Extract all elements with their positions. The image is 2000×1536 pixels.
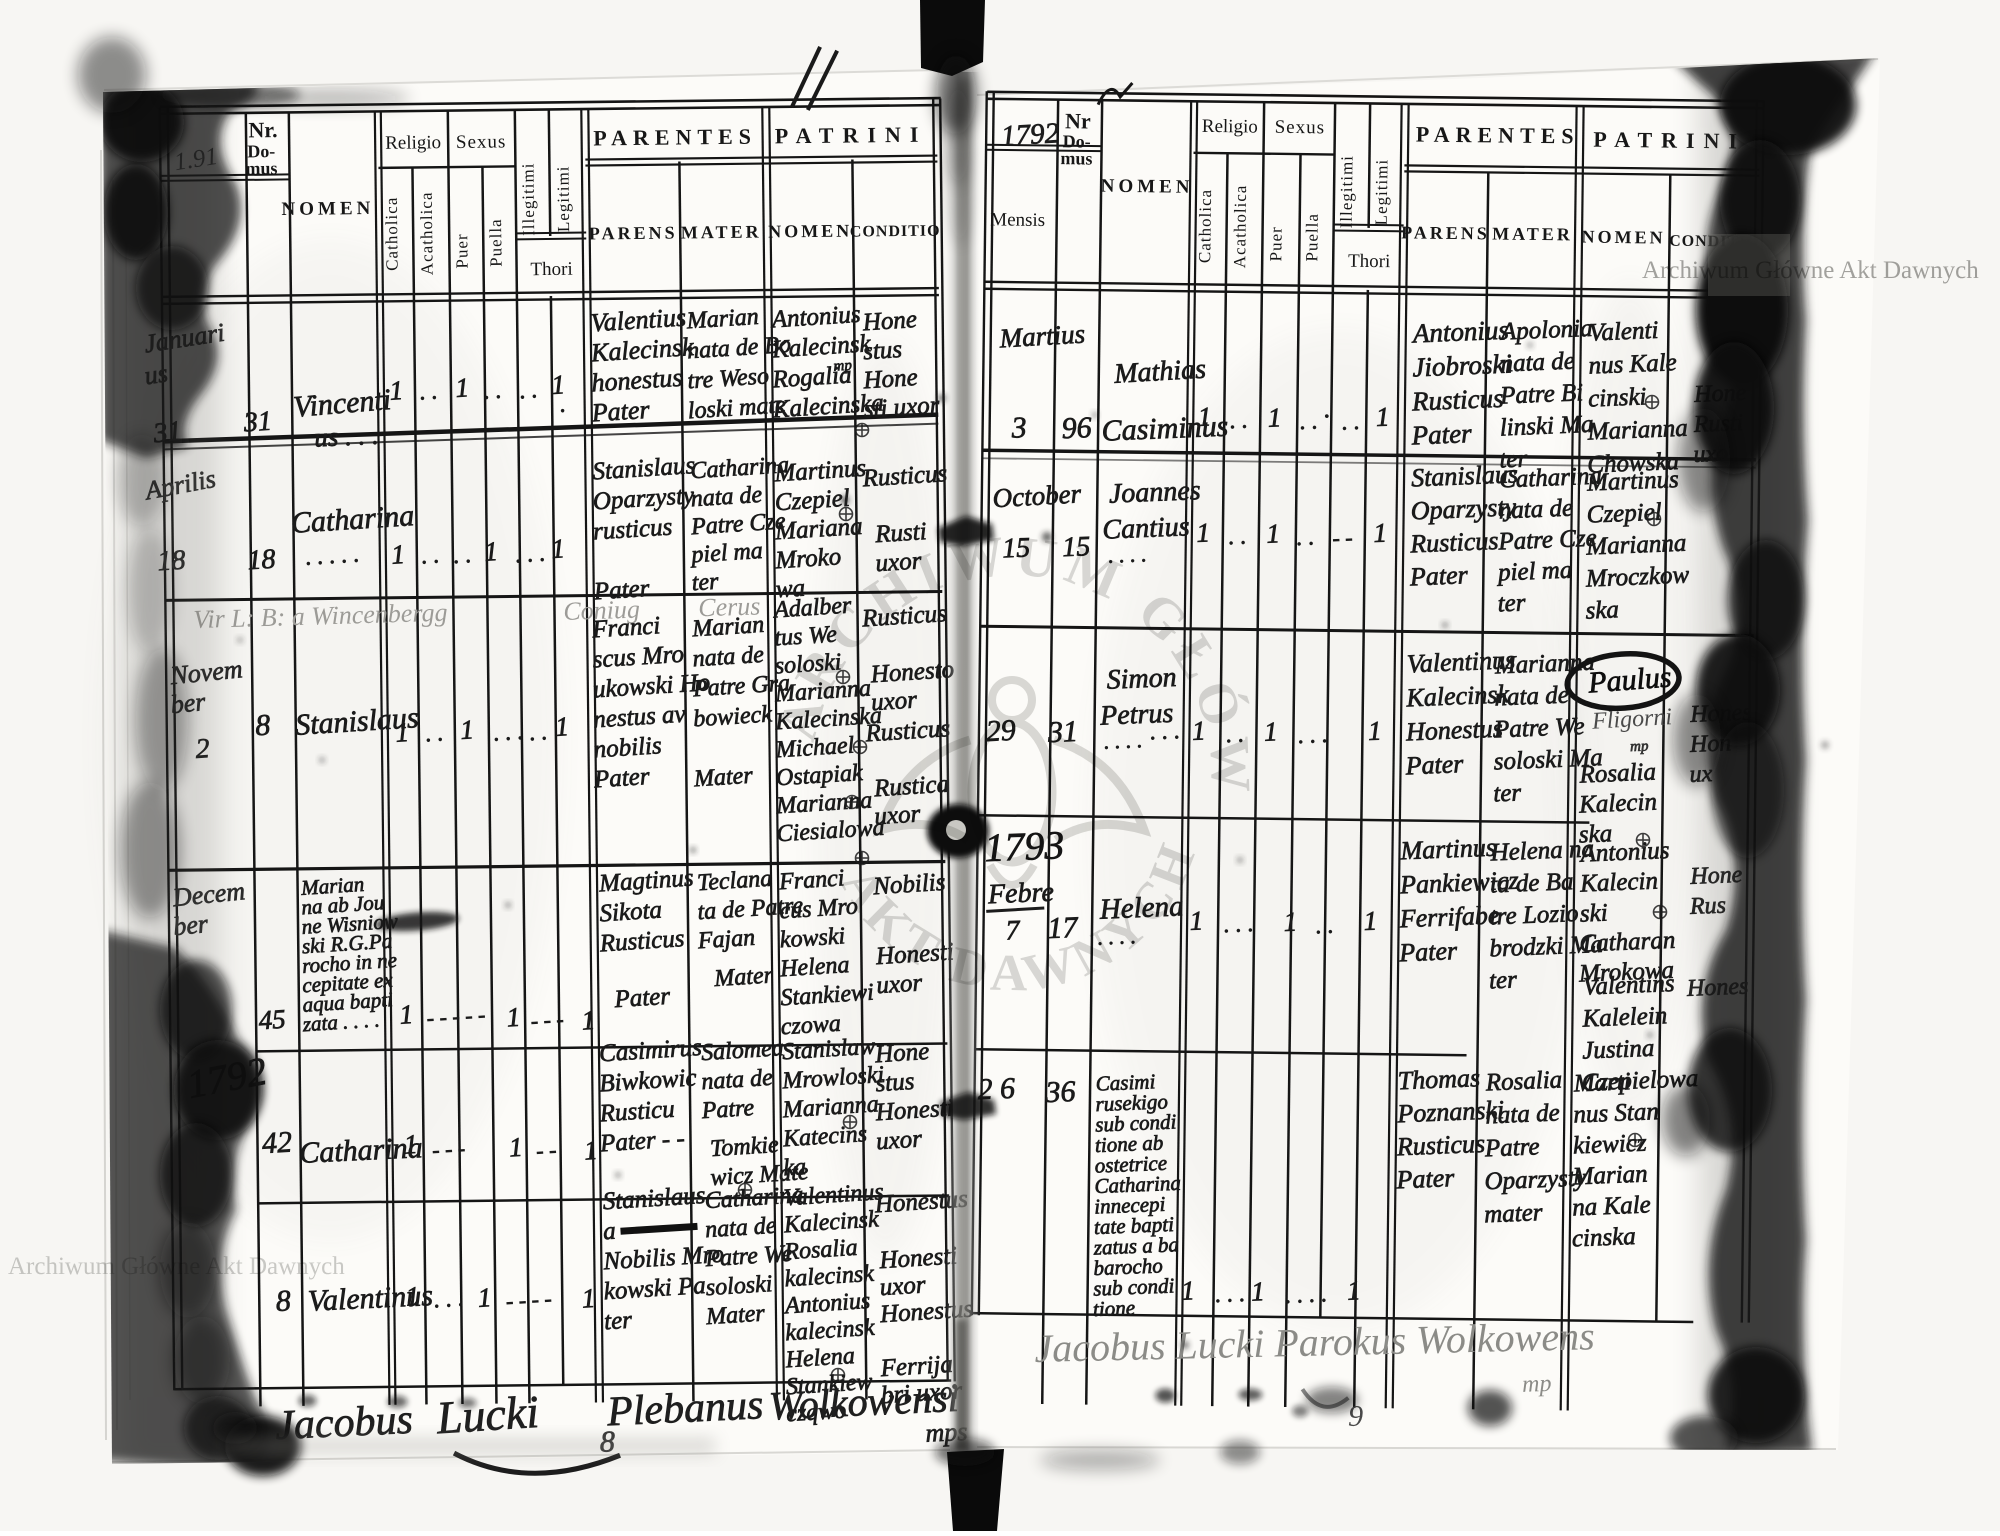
svg-text:- - -: - - - [431, 1135, 466, 1162]
svg-text:Hone: Hone [862, 364, 919, 394]
svg-text:Fajan: Fajan [696, 925, 756, 955]
svg-text:Pater: Pater [1404, 749, 1465, 780]
svg-text:NOMEN: NOMEN [1101, 176, 1194, 198]
svg-text:Tomkie: Tomkie [709, 1132, 779, 1162]
svg-text:- -: - - [535, 1137, 557, 1163]
svg-text:Marianna: Marianna [1585, 530, 1687, 561]
svg-text:36: 36 [1044, 1075, 1076, 1109]
svg-text:1: 1 [1373, 518, 1388, 549]
svg-text:Kalecin: Kalecin [1578, 788, 1658, 818]
svg-text:Pater: Pater [1398, 936, 1459, 967]
svg-text:3: 3 [1010, 411, 1027, 445]
svg-text:us . . .: us . . . [313, 420, 379, 453]
svg-text:7: 7 [1005, 915, 1021, 947]
svg-text:Hone: Hone [873, 1038, 930, 1068]
svg-text:Illegitimi: Illegitimi [518, 162, 538, 235]
svg-text:ska: ska [1585, 596, 1619, 624]
svg-text:Valentius: Valentius [590, 302, 687, 337]
svg-text:. .: . . [1229, 408, 1248, 435]
svg-text:Sikota: Sikota [599, 897, 663, 928]
svg-text:Rusticus: Rusticus [1395, 1129, 1485, 1162]
svg-text:Rosalia: Rosalia [1578, 759, 1656, 789]
svg-text:31: 31 [242, 406, 273, 439]
svg-text:Pater - -: Pater - - [598, 1125, 685, 1157]
svg-text:. .: . . [421, 542, 441, 569]
svg-text:Patre We: Patre We [1493, 713, 1586, 744]
svg-text:nata de: nata de [1494, 682, 1569, 712]
svg-text:.: . [1323, 394, 1331, 423]
svg-text:1: 1 [459, 714, 474, 745]
svg-text:1: 1 [1283, 906, 1298, 937]
svg-text:Rusticus: Rusticus [1410, 383, 1504, 417]
svg-text:Rusticus: Rusticus [861, 460, 948, 492]
svg-text:Kalecin: Kalecin [1579, 867, 1659, 897]
svg-text:Pater: Pater [613, 983, 671, 1014]
svg-text:1: 1 [1367, 715, 1382, 746]
svg-text:na Kale: na Kale [1572, 1191, 1651, 1221]
svg-text:Mater: Mater [712, 962, 774, 992]
svg-text:ter: ter [603, 1307, 633, 1336]
svg-text:1: 1 [1196, 517, 1211, 548]
svg-text:NOMEN: NOMEN [281, 198, 374, 220]
svg-text:1: 1 [554, 711, 569, 742]
svg-text:1: 1 [508, 1132, 523, 1163]
svg-text:tre Lozio: tre Lozio [1489, 900, 1579, 931]
svg-text:nata de: nata de [701, 1065, 774, 1096]
svg-text:. .: . . [483, 378, 503, 405]
svg-text:cinski: cinski [1588, 383, 1647, 412]
svg-text:Honestus: Honestus [1404, 714, 1503, 747]
svg-text:Ferrifabe: Ferrifabe [1398, 900, 1500, 933]
svg-text:ter: ter [1488, 966, 1517, 994]
svg-text:. .: . . [519, 377, 539, 404]
svg-text:1: 1 [583, 1135, 598, 1166]
svg-text:Antonius: Antonius [1578, 837, 1670, 868]
svg-text:Catholica: Catholica [1195, 189, 1215, 263]
svg-text:uxor: uxor [870, 686, 918, 716]
svg-text:Mroczkow: Mroczkow [1584, 561, 1690, 592]
svg-text:Patre Cze: Patre Cze [1497, 525, 1597, 556]
svg-text:1: 1 [483, 536, 498, 567]
svg-text:Patre: Patre [700, 1095, 755, 1124]
svg-text:1: 1 [455, 372, 470, 403]
svg-text:PATRINI: PATRINI [775, 122, 928, 149]
svg-text:Lucki: Lucki [434, 1386, 540, 1443]
svg-text:1: 1 [1375, 402, 1390, 433]
svg-text:nobilis: nobilis [593, 732, 663, 763]
svg-text:Nr.: Nr. [248, 117, 277, 142]
svg-text:1: 1 [1181, 1275, 1196, 1306]
svg-text:honestus: honestus [591, 363, 684, 398]
svg-text:Rusticu: Rusticu [598, 1096, 676, 1128]
svg-text:linski Ma: linski Ma [1499, 411, 1594, 442]
svg-text:Archiwum Główne Akt Dawnych: Archiwum Główne Akt Dawnych [1642, 257, 1979, 284]
svg-text:Martinus: Martinus [1399, 833, 1496, 866]
svg-text:Pater: Pater [592, 763, 650, 794]
svg-text:mus: mus [245, 158, 277, 178]
svg-text:1: 1 [1347, 1275, 1362, 1306]
svg-text:PARENTES: PARENTES [1416, 122, 1580, 149]
svg-text:Acatholica: Acatholica [1230, 184, 1250, 268]
svg-text:Marianna: Marianna [1586, 415, 1688, 446]
svg-text:1: 1 [1266, 518, 1281, 549]
svg-text:ter: ter [1497, 589, 1526, 617]
svg-text:mus: mus [1060, 148, 1092, 168]
svg-text:Kalelein: Kalelein [1581, 1002, 1668, 1032]
svg-text:- - - - -: - - - - - [426, 1002, 486, 1031]
svg-text:- - -: - - - [530, 1006, 565, 1033]
svg-text:Ostapiak: Ostapiak [775, 760, 863, 791]
svg-text:nata de: nata de [704, 1213, 777, 1244]
svg-text:Nr: Nr [1065, 108, 1091, 133]
svg-text:zata . . . .: zata . . . . [301, 1007, 380, 1036]
svg-text:1: 1 [390, 539, 405, 570]
svg-text:Pater: Pater [1395, 1163, 1456, 1194]
svg-text:Catharan: Catharan [1579, 927, 1676, 958]
svg-text:Legitimi: Legitimi [1372, 159, 1392, 226]
svg-text:Valenti: Valenti [1588, 317, 1659, 347]
svg-text:45: 45 [258, 1004, 287, 1036]
svg-text:nata de: nata de [1500, 348, 1575, 378]
svg-text:Paulus: Paulus [1586, 660, 1673, 699]
svg-text:NOMEN: NOMEN [1581, 227, 1665, 248]
svg-text:Thori: Thori [1348, 251, 1390, 273]
svg-text:. . . . .: . . . . . [305, 541, 361, 570]
svg-text:. .: . . [1296, 524, 1315, 551]
svg-text:Pater: Pater [1410, 418, 1473, 450]
svg-text:uxor: uxor [879, 1271, 927, 1301]
svg-text:ka: ka [783, 1154, 807, 1181]
svg-text:Antonius: Antonius [1410, 315, 1509, 349]
svg-text:nata de: nata de [692, 642, 765, 673]
svg-text:stus: stus [862, 336, 903, 365]
svg-text:. . .: . . . [1215, 1281, 1246, 1308]
svg-text:. . .: . . . [493, 719, 525, 747]
svg-text:soloski: soloski [705, 1271, 773, 1301]
svg-text:. . .: . . . [433, 1285, 465, 1313]
svg-text:1: 1 [405, 1281, 420, 1312]
svg-text:Patre: Patre [1483, 1133, 1540, 1162]
svg-text:. . . .: . . . . [1285, 1281, 1328, 1309]
svg-text:Apolonia: Apolonia [1498, 315, 1593, 346]
svg-text:Jiobroski: Jiobroski [1412, 349, 1513, 383]
svg-text:Rusticus: Rusticus [1409, 526, 1499, 559]
svg-text:Marti: Marti [1572, 1068, 1631, 1097]
svg-text:1: 1 [1251, 1276, 1266, 1307]
svg-text:Marian: Marian [685, 304, 760, 335]
svg-text:NOMEN: NOMEN [768, 221, 852, 242]
svg-text:Puer: Puer [452, 233, 471, 268]
svg-text:Valentins: Valentins [1582, 970, 1675, 1001]
svg-text:Rosalia: Rosalia [1484, 1066, 1562, 1096]
svg-text:1792: 1792 [1000, 117, 1060, 152]
svg-text:tione: tione [1093, 1295, 1136, 1321]
svg-text:1: 1 [477, 1282, 492, 1313]
svg-text:Puella: Puella [1302, 213, 1322, 262]
svg-text:1: 1 [1267, 402, 1282, 433]
svg-text:Religio: Religio [385, 132, 441, 154]
svg-text:CONDITIO: CONDITIO [850, 223, 941, 241]
svg-text:rusticus: rusticus [592, 513, 673, 545]
svg-text:Hone: Hone [861, 306, 918, 336]
svg-text:mp: mp [1630, 738, 1649, 755]
svg-text:mp: mp [1522, 1371, 1552, 1398]
svg-text:Puella: Puella [486, 218, 506, 267]
svg-text:1: 1 [403, 1129, 418, 1160]
svg-text:1: 1 [1197, 401, 1212, 432]
svg-text:Marian: Marian [1571, 1161, 1648, 1191]
svg-text:ski: ski [1579, 899, 1608, 927]
svg-text:1: 1 [581, 1005, 596, 1036]
svg-text:Honesto: Honesto [869, 656, 955, 688]
svg-text:Catholica: Catholica [382, 197, 402, 271]
svg-text:Rusticus: Rusticus [864, 715, 951, 747]
svg-text:Thori: Thori [530, 259, 572, 280]
svg-text:Mater: Mater [704, 1301, 766, 1331]
svg-text:ta de Ba: ta de Ba [1490, 868, 1574, 898]
svg-text:Pater: Pater [590, 395, 651, 428]
svg-text:stus: stus [875, 1068, 916, 1097]
svg-text:bowieck: bowieck [693, 701, 773, 732]
svg-text:Rusti: Rusti [873, 518, 927, 548]
svg-text:Marian: Marian [691, 612, 766, 643]
svg-text:a: a [602, 1218, 616, 1246]
svg-text:mater: mater [1484, 1199, 1544, 1228]
svg-text:. .: . . [1299, 408, 1318, 435]
svg-text:Fligorni: Fligorni [1590, 704, 1672, 735]
svg-text:PARENS: PARENS [1401, 222, 1490, 243]
svg-text:Joannes: Joannes [1108, 475, 1201, 510]
svg-text:nus Kale: nus Kale [1588, 349, 1677, 380]
svg-text:Martinus: Martinus [1586, 466, 1680, 497]
svg-text:sti uxor: sti uxor [863, 392, 941, 424]
svg-text:1: 1 [1189, 905, 1204, 936]
svg-text:Antonius: Antonius [769, 301, 861, 334]
svg-text:1: 1 [394, 717, 409, 748]
svg-text:Illegitimi: Illegitimi [1337, 155, 1357, 229]
svg-text:Sexus: Sexus [456, 131, 507, 153]
svg-text:Mater: Mater [692, 763, 754, 793]
svg-text:. . .: . . . [1298, 722, 1329, 749]
svg-text:1: 1 [399, 999, 414, 1030]
svg-text:1: 1 [581, 1283, 596, 1314]
svg-text:Religio: Religio [1202, 116, 1258, 138]
svg-text:nata de: nata de [1485, 1099, 1560, 1129]
svg-text:. . . .: . . . . [1103, 727, 1142, 754]
svg-text:Rosalia: Rosalia [783, 1235, 859, 1266]
svg-text:Helena: Helena [784, 1343, 856, 1373]
svg-text:18: 18 [246, 544, 276, 577]
svg-text:Helena na: Helena na [1489, 835, 1594, 866]
svg-text:96: 96 [1061, 411, 1092, 445]
svg-text:. .: . . [1315, 913, 1334, 940]
svg-text:. . .: . . . [515, 541, 547, 569]
svg-text:October: October [992, 478, 1083, 513]
svg-text:Salomea: Salomea [700, 1035, 784, 1066]
svg-text:nata de: nata de [1498, 495, 1573, 525]
svg-text:Patre Bi: Patre Bi [1499, 379, 1584, 409]
svg-text:piel ma: piel ma [1495, 557, 1572, 587]
svg-text:. .: . . [1228, 524, 1247, 551]
svg-text:Puer: Puer [1266, 226, 1285, 261]
svg-text:cinska: cinska [1571, 1223, 1636, 1253]
svg-text:nus Stan: nus Stan [1573, 1098, 1659, 1128]
svg-text:nata de: nata de [690, 482, 763, 513]
svg-text:MATER: MATER [681, 222, 762, 243]
svg-text:Rusticus: Rusticus [598, 925, 685, 957]
svg-text:Helena: Helena [778, 952, 850, 982]
svg-text:1: 1 [1363, 905, 1378, 936]
svg-text:1: 1 [550, 533, 565, 564]
svg-text:. .: . . [453, 542, 473, 569]
svg-text:Justina: Justina [1582, 1035, 1655, 1065]
svg-text:- -: - - [1332, 525, 1353, 551]
svg-text:. .: . . [419, 378, 439, 405]
svg-text:PARENS: PARENS [589, 223, 678, 244]
svg-text:MATER: MATER [1492, 223, 1573, 244]
svg-text:piel ma: piel ma [689, 538, 764, 569]
svg-text:1: 1 [1263, 716, 1278, 747]
svg-text:Archiwum Główne Akt Dawnych: Archiwum Główne Akt Dawnych [8, 1253, 345, 1280]
svg-text:mp: mp [833, 358, 853, 375]
svg-text:Franci: Franci [590, 612, 661, 643]
svg-text:. . .: . . . [1150, 718, 1181, 745]
svg-text:Thomas: Thomas [1397, 1063, 1480, 1095]
svg-text:PARENTES: PARENTES [593, 124, 757, 151]
svg-text:uxor: uxor [875, 1125, 923, 1155]
svg-text:Plebanus: Plebanus [605, 1382, 764, 1435]
svg-text:Acatholica: Acatholica [417, 191, 437, 275]
svg-text:Mensis: Mensis [990, 209, 1045, 231]
svg-text:1: 1 [506, 1002, 521, 1033]
svg-text:Mathias: Mathias [1112, 354, 1207, 390]
svg-text:ter: ter [1493, 779, 1522, 807]
svg-text:8: 8 [275, 1284, 292, 1318]
svg-text:Sexus: Sexus [1275, 117, 1326, 139]
svg-text:Teclana: Teclana [696, 866, 773, 897]
svg-text:Mariana: Mariana [773, 513, 863, 546]
svg-text:. .: . . [1341, 409, 1360, 436]
svg-text:tre Weso: tre Weso [687, 363, 770, 394]
svg-text:. .: . . [529, 719, 549, 746]
svg-text:kowski: kowski [779, 923, 846, 953]
svg-text:1: 1 [389, 375, 404, 406]
svg-text:Honesti: Honesti [878, 1242, 958, 1274]
svg-text:. . .: . . . [1223, 911, 1254, 938]
svg-text:8: 8 [254, 708, 271, 742]
svg-text:Martius: Martius [998, 319, 1086, 354]
svg-text:Mroko: Mroko [774, 543, 842, 574]
svg-text:Legitimi: Legitimi [553, 165, 573, 232]
svg-text:- - - -: - - - - [505, 1286, 552, 1314]
svg-text:42: 42 [261, 1125, 293, 1160]
svg-text:. .: . . [425, 720, 445, 747]
svg-text:Pater: Pater [1408, 560, 1469, 591]
